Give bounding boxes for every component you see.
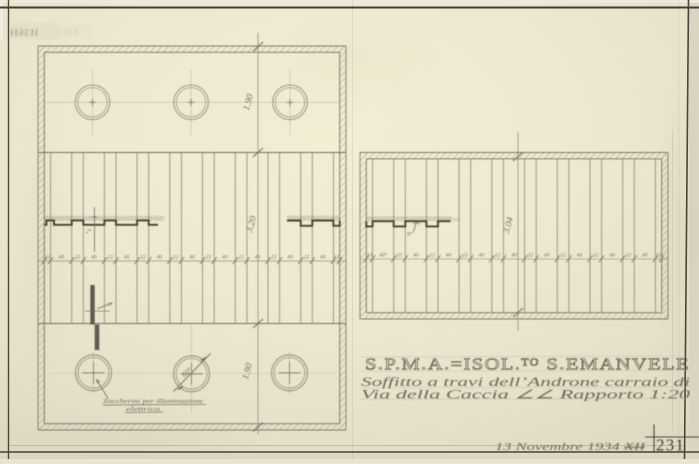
svg-text:40: 40 [609, 253, 615, 259]
svg-text:40: 40 [413, 253, 419, 259]
svg-text:ОΕЕ: ОΕЕ [60, 27, 81, 37]
svg-text:40: 40 [189, 255, 195, 261]
svg-text:40: 40 [58, 255, 64, 261]
svg-text:22: 22 [140, 255, 146, 261]
svg-text:40: 40 [479, 253, 485, 259]
svg-text:40: 40 [157, 255, 163, 261]
svg-text:15: 15 [107, 302, 113, 308]
svg-text:ИЗ6Н: ИЗ6Н [9, 28, 38, 39]
svg-text:Via della Caccia ∠∠ Rapporto 1: Via della Caccia ∠∠ Rapporto 1:20 [361, 388, 690, 402]
svg-text:40: 40 [446, 253, 452, 259]
svg-text:22: 22 [206, 255, 212, 261]
svg-text:9°: 9° [407, 231, 413, 238]
svg-text:22: 22 [397, 253, 403, 259]
svg-text:40: 40 [511, 253, 517, 259]
svg-text:22: 22 [593, 253, 599, 259]
svg-text:22: 22 [429, 253, 435, 259]
svg-text:12: 12 [45, 255, 51, 261]
svg-text:40: 40 [124, 255, 130, 261]
svg-text:13: 13 [367, 253, 373, 259]
svg-text:40: 40 [222, 255, 228, 261]
svg-text:elettrica: elettrica [126, 406, 161, 413]
svg-text:40: 40 [255, 255, 261, 261]
svg-text:22: 22 [560, 253, 566, 259]
svg-text:40: 40 [544, 253, 550, 259]
svg-text:22: 22 [528, 253, 534, 259]
svg-text:22: 22 [173, 255, 179, 261]
svg-text:40: 40 [577, 253, 583, 259]
svg-text:13 Novembre 1934 XII: 13 Novembre 1934 XII [495, 442, 646, 453]
svg-text:13: 13 [656, 253, 662, 259]
svg-text:2°: 2° [86, 228, 92, 235]
svg-text:22: 22 [495, 253, 501, 259]
svg-text:22: 22 [107, 255, 113, 261]
svg-text:22: 22 [75, 255, 81, 261]
svg-text:22: 22 [304, 255, 310, 261]
svg-text:40°: 40° [379, 252, 388, 259]
svg-text:40: 40 [642, 253, 648, 259]
svg-text:231: 231 [656, 436, 685, 455]
svg-text:Zoccherini per illuminazione: Zoccherini per illuminazione [103, 398, 203, 405]
svg-text:22: 22 [271, 255, 277, 261]
svg-text:40: 40 [91, 255, 97, 261]
svg-text:12: 12 [334, 255, 340, 261]
svg-text:22: 22 [462, 253, 468, 259]
svg-text:22: 22 [626, 253, 632, 259]
svg-text:40: 40 [320, 255, 326, 261]
svg-text:22: 22 [238, 255, 244, 261]
svg-text:40: 40 [287, 255, 293, 261]
